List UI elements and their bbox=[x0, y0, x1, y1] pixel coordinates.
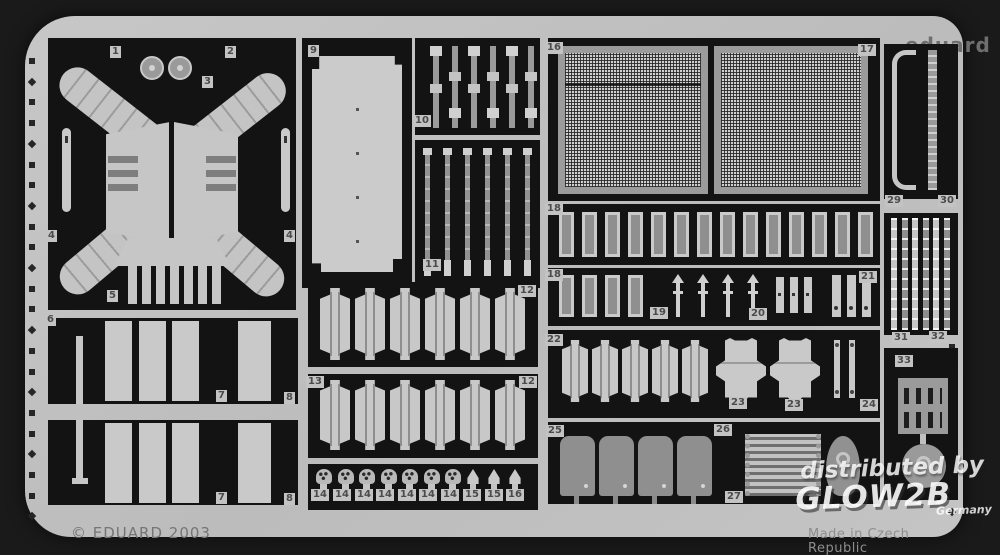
part-disc bbox=[140, 56, 164, 80]
rib-bar bbox=[206, 170, 236, 177]
pin-crossbar bbox=[723, 291, 733, 294]
part-plate bbox=[172, 321, 199, 401]
part-large-panel bbox=[312, 56, 402, 272]
strap-tail bbox=[484, 260, 491, 276]
part-strip bbox=[790, 277, 798, 313]
part-number-label: 1 bbox=[110, 46, 121, 58]
fan-strip bbox=[156, 264, 165, 304]
panel-clamps bbox=[548, 330, 880, 418]
cover-stem bbox=[652, 496, 657, 504]
latch-seam bbox=[690, 344, 700, 398]
strap-buckle bbox=[506, 84, 518, 93]
part-strap bbox=[445, 148, 450, 274]
part-number-label: 10 bbox=[413, 115, 431, 127]
part-rod bbox=[62, 128, 71, 212]
part-number-label: 5 bbox=[107, 290, 118, 302]
latch-seam bbox=[400, 384, 410, 446]
attach-dot bbox=[29, 244, 35, 250]
strap-buckle bbox=[449, 72, 461, 81]
pin-shaft bbox=[701, 283, 705, 317]
part-mesh-screen-16 bbox=[558, 46, 708, 194]
slot-row bbox=[904, 388, 942, 404]
strap-buckle bbox=[430, 84, 442, 93]
part-number-label: 16 bbox=[545, 42, 563, 54]
part-cover bbox=[677, 436, 712, 496]
attach-dot bbox=[29, 472, 35, 478]
part-frame bbox=[582, 212, 597, 257]
cover-dot bbox=[623, 484, 627, 488]
part-number-label: 18 bbox=[545, 269, 563, 281]
part-latch bbox=[320, 380, 350, 450]
part-strip bbox=[804, 277, 812, 313]
part-latch bbox=[355, 288, 385, 360]
part-number-label: 14 bbox=[311, 489, 329, 501]
part-dotted-strip bbox=[902, 218, 908, 330]
part-dotted-strip bbox=[944, 218, 950, 330]
pin-head bbox=[672, 274, 684, 283]
part-number-label: 21 bbox=[859, 271, 877, 283]
attach-dot bbox=[29, 348, 35, 354]
part-frame bbox=[674, 212, 689, 257]
attach-dot bbox=[948, 508, 956, 516]
panel-col-right-mid bbox=[884, 213, 958, 335]
part-number-label: 15 bbox=[485, 489, 503, 501]
photo-etch-sheet-photo: 35 560 BMP-2 part1 eduard © EDUARD 2003 … bbox=[0, 0, 1000, 555]
strip-dot bbox=[778, 293, 781, 296]
pin-crossbar bbox=[673, 291, 683, 294]
strap-buckle bbox=[449, 108, 461, 118]
part-number-label: 8 bbox=[284, 493, 295, 505]
part-plate bbox=[172, 423, 199, 503]
part-number-label: 13 bbox=[306, 376, 324, 388]
part-bracket-strip bbox=[76, 420, 83, 482]
part-number-label: 12 bbox=[519, 376, 537, 388]
part-strap bbox=[425, 148, 430, 274]
latch-seam bbox=[470, 292, 480, 356]
part-frame bbox=[582, 275, 597, 317]
part-latch bbox=[562, 340, 588, 402]
strap-tail bbox=[464, 260, 471, 276]
part-plate bbox=[105, 423, 132, 503]
part-winged-bracket bbox=[716, 338, 766, 400]
part-number-label: 7 bbox=[216, 492, 227, 504]
part-number-label: 22 bbox=[545, 334, 563, 346]
latch-seam bbox=[660, 344, 670, 398]
panel-latches-a bbox=[308, 282, 538, 367]
attach-dot bbox=[29, 182, 35, 188]
latch-seam bbox=[600, 344, 610, 398]
copyright-text: © EDUARD 2003 bbox=[71, 525, 211, 541]
pin-shaft bbox=[726, 283, 730, 317]
strip-hole bbox=[849, 306, 853, 310]
part-number-label: 6 bbox=[45, 314, 56, 326]
part-frame bbox=[835, 212, 850, 257]
part-dotted-strip bbox=[928, 50, 937, 190]
fan-strip bbox=[142, 264, 151, 304]
part-strip bbox=[832, 275, 841, 317]
part-cover bbox=[599, 436, 634, 496]
pin-head bbox=[722, 274, 734, 283]
part-number-label: 15 bbox=[463, 489, 481, 501]
part-latch bbox=[495, 380, 525, 450]
x-side-bars-right bbox=[48, 38, 49, 39]
part-number-label: 32 bbox=[929, 331, 947, 343]
part-latch bbox=[460, 288, 490, 360]
pin-crossbar bbox=[748, 291, 758, 294]
part-number-label: 2 bbox=[225, 46, 236, 58]
rib-bar bbox=[108, 156, 138, 163]
panel-col-right-top bbox=[884, 44, 958, 199]
part-number-label: 3 bbox=[202, 76, 213, 88]
cutout-x-frame bbox=[48, 38, 296, 310]
fan-strip bbox=[128, 264, 137, 304]
part-rod bbox=[281, 128, 290, 212]
part-cone bbox=[466, 469, 480, 484]
rib-bar bbox=[108, 170, 138, 177]
latch-seam bbox=[435, 384, 445, 446]
part-number-label: 12 bbox=[518, 285, 536, 297]
strap-buckle bbox=[468, 46, 480, 56]
part-frame bbox=[559, 212, 574, 257]
rib-bar bbox=[108, 184, 138, 191]
part-number-label: 14 bbox=[398, 489, 416, 501]
part-plate bbox=[105, 321, 132, 401]
part-knob bbox=[381, 469, 397, 484]
part-number-label: 8 bbox=[284, 392, 295, 404]
attach-dot bbox=[28, 388, 36, 396]
panel-lower-left-b bbox=[48, 420, 298, 505]
attach-dot bbox=[29, 369, 35, 375]
part-knob bbox=[338, 469, 354, 484]
part-number-label: 27 bbox=[725, 491, 743, 503]
rivet-dot bbox=[356, 240, 359, 243]
part-thin-strip bbox=[834, 340, 840, 398]
part-number-label: 9 bbox=[308, 45, 319, 57]
strap-tail bbox=[524, 260, 531, 276]
rivet-dot bbox=[356, 196, 359, 199]
rib-bar bbox=[206, 156, 236, 163]
part-frame bbox=[697, 212, 712, 257]
part-latch bbox=[320, 288, 350, 360]
pin-shaft bbox=[676, 283, 680, 317]
part-cover bbox=[638, 436, 673, 496]
strip-dot bbox=[792, 293, 795, 296]
mesh-fold-line bbox=[565, 83, 701, 86]
attach-dot bbox=[29, 162, 35, 168]
part-frame bbox=[651, 212, 666, 257]
part-bracket-strip bbox=[76, 336, 83, 404]
panel-straps-short bbox=[415, 38, 540, 135]
strap-tip bbox=[483, 148, 492, 155]
part-knob bbox=[359, 469, 375, 484]
part-number-label: 25 bbox=[546, 425, 564, 437]
strap-tip bbox=[443, 148, 452, 155]
part-frame bbox=[812, 212, 827, 257]
part-mesh-screen-17 bbox=[714, 46, 868, 194]
part-number-label: 14 bbox=[333, 489, 351, 501]
part-knob bbox=[402, 469, 418, 484]
part-number-label: 23 bbox=[729, 397, 747, 409]
part-frame bbox=[559, 275, 574, 317]
cover-stem bbox=[613, 496, 618, 504]
part-pin bbox=[722, 274, 734, 320]
part-cover bbox=[560, 436, 595, 496]
latch-seam bbox=[505, 384, 515, 446]
part-frame bbox=[628, 212, 643, 257]
attach-dot bbox=[29, 306, 35, 312]
strap-tip bbox=[503, 148, 512, 155]
strip-hole bbox=[835, 343, 839, 347]
attach-dot bbox=[29, 99, 35, 105]
made-in-text: Made in Czech Republic bbox=[808, 528, 963, 555]
disc-ring bbox=[916, 456, 931, 471]
part-plate bbox=[139, 321, 166, 401]
part-latch bbox=[682, 340, 708, 402]
attach-dot bbox=[28, 326, 36, 334]
part-strap bbox=[465, 148, 470, 274]
strap-buckle bbox=[487, 72, 499, 81]
part-latch bbox=[355, 380, 385, 450]
panel-mixed-row bbox=[548, 268, 880, 326]
strap-buckle bbox=[487, 108, 499, 118]
latch-seam bbox=[330, 384, 340, 446]
fan-strip bbox=[212, 264, 221, 304]
part-winged-bracket bbox=[770, 338, 820, 400]
part-frame bbox=[858, 212, 873, 257]
part-number-label: 11 bbox=[423, 259, 441, 271]
part-number-label: 7 bbox=[216, 390, 227, 402]
strip-dot bbox=[806, 293, 809, 296]
part-u-channel bbox=[892, 50, 916, 190]
attach-dot bbox=[28, 202, 36, 210]
strap-tip bbox=[523, 148, 532, 155]
x-fan-strips bbox=[48, 38, 296, 310]
slot-row bbox=[904, 412, 942, 428]
part-strap bbox=[485, 148, 490, 274]
part-cone bbox=[508, 469, 522, 484]
part-latch bbox=[652, 340, 678, 402]
panel-small-fittings bbox=[308, 464, 538, 510]
part-frame bbox=[766, 212, 781, 257]
pin-head bbox=[697, 274, 709, 283]
cutout-mesh-screens bbox=[548, 38, 880, 201]
part-plate bbox=[139, 423, 166, 503]
attach-dot bbox=[28, 450, 36, 458]
part-number-label: 18 bbox=[545, 203, 563, 215]
part-latch bbox=[592, 340, 618, 402]
strap-buckle bbox=[506, 46, 518, 56]
cover-dot bbox=[662, 484, 666, 488]
part-number-label: 14 bbox=[355, 489, 373, 501]
strap-buckle bbox=[468, 84, 480, 93]
pin-head bbox=[747, 274, 759, 283]
part-number-label: 26 bbox=[714, 424, 732, 436]
strap-buckle bbox=[430, 46, 442, 56]
part-number-label: 14 bbox=[419, 489, 437, 501]
rib-bar bbox=[206, 184, 236, 191]
part-frame bbox=[743, 212, 758, 257]
wing-seam bbox=[774, 362, 816, 364]
part-latch bbox=[390, 380, 420, 450]
part-number-label: 4 bbox=[46, 230, 57, 242]
part-cone bbox=[487, 469, 501, 484]
latch-seam bbox=[630, 344, 640, 398]
attach-dot bbox=[28, 264, 36, 272]
part-slotted-box bbox=[898, 378, 948, 434]
strip-hole bbox=[850, 343, 854, 347]
bracket-foot bbox=[72, 478, 88, 484]
latch-seam bbox=[365, 384, 375, 446]
part-plate bbox=[238, 423, 271, 503]
part-number-label: 31 bbox=[892, 332, 910, 344]
part-latch bbox=[425, 288, 455, 360]
part-latch bbox=[390, 288, 420, 360]
rod-pin bbox=[65, 136, 68, 143]
attach-dot bbox=[29, 224, 35, 230]
part-frame bbox=[628, 275, 643, 317]
part-number-label: 19 bbox=[650, 307, 668, 319]
cover-stem bbox=[691, 496, 696, 504]
part-dotted-strip bbox=[912, 218, 918, 330]
strip-hole bbox=[864, 306, 868, 310]
part-disc bbox=[168, 56, 192, 80]
part-number-label: 14 bbox=[441, 489, 459, 501]
latch-seam bbox=[470, 384, 480, 446]
part-number-label: 16 bbox=[506, 489, 524, 501]
part-latch bbox=[495, 288, 525, 360]
part-number-label: 20 bbox=[749, 308, 767, 320]
latch-seam bbox=[505, 292, 515, 356]
part-dotted-strip bbox=[923, 218, 929, 330]
strip-hole bbox=[835, 390, 839, 394]
cover-dot bbox=[701, 484, 705, 488]
part-number-label: 23 bbox=[785, 399, 803, 411]
part-number-label: 4 bbox=[284, 230, 295, 242]
strap-tip bbox=[423, 148, 432, 155]
rivet-dot bbox=[356, 152, 359, 155]
part-knob bbox=[445, 469, 461, 484]
part-rounded-cap bbox=[826, 436, 860, 496]
panel-latches-b bbox=[308, 374, 538, 458]
attach-dot bbox=[29, 493, 35, 499]
part-frame bbox=[605, 275, 620, 317]
latch-seam bbox=[330, 292, 340, 356]
part-number-label: 30 bbox=[938, 195, 956, 207]
box-stem bbox=[920, 434, 926, 444]
part-number-label: 29 bbox=[885, 195, 903, 207]
panel-col-right-bottom bbox=[884, 348, 958, 500]
wing-seam bbox=[720, 362, 762, 364]
part-number-label: 33 bbox=[895, 355, 913, 367]
disc-hole bbox=[177, 65, 183, 71]
left-attach-dots bbox=[29, 58, 35, 538]
attach-dot bbox=[28, 140, 36, 148]
fan-strip bbox=[184, 264, 193, 304]
disc-hole bbox=[149, 65, 155, 71]
strap-buckle bbox=[525, 108, 537, 118]
strap-tip bbox=[463, 148, 472, 155]
panel-lower-left-a bbox=[48, 318, 298, 404]
latch-seam bbox=[435, 292, 445, 356]
part-knob bbox=[424, 469, 440, 484]
latch-seam bbox=[400, 292, 410, 356]
part-strip bbox=[847, 275, 856, 317]
attach-dot bbox=[28, 512, 36, 520]
part-round-disc bbox=[902, 444, 946, 488]
part-pin bbox=[697, 274, 709, 320]
attach-dot bbox=[29, 58, 35, 64]
attach-dot bbox=[29, 410, 35, 416]
attach-dot bbox=[29, 120, 35, 126]
strip-hole bbox=[834, 306, 838, 310]
panel-buckles-row bbox=[548, 204, 880, 265]
cover-dot bbox=[584, 484, 588, 488]
part-thin-strip bbox=[849, 340, 855, 398]
part-strap bbox=[525, 148, 530, 274]
part-strap bbox=[505, 148, 510, 274]
attach-dot bbox=[28, 78, 36, 86]
part-dotted-strip bbox=[891, 218, 897, 330]
attach-dot bbox=[29, 286, 35, 292]
part-number-label: 24 bbox=[860, 399, 878, 411]
part-pin bbox=[672, 274, 684, 320]
fan-strip bbox=[198, 264, 207, 304]
strap-tail bbox=[444, 260, 451, 276]
cutout-large-plate bbox=[302, 38, 412, 288]
latch-seam bbox=[365, 292, 375, 356]
cover-stem bbox=[574, 496, 579, 504]
strap-buckle bbox=[525, 72, 537, 81]
strip-hole bbox=[850, 390, 854, 394]
part-strip bbox=[776, 277, 784, 313]
part-dotted-strip bbox=[933, 218, 939, 330]
part-latch bbox=[425, 380, 455, 450]
part-number-label: 14 bbox=[376, 489, 394, 501]
part-latch bbox=[460, 380, 490, 450]
part-ladder-grille bbox=[745, 434, 821, 496]
part-knob bbox=[316, 469, 332, 484]
rod-pin bbox=[284, 136, 287, 143]
attach-dot bbox=[29, 431, 35, 437]
fan-strip bbox=[170, 264, 179, 304]
rivet-dot bbox=[356, 108, 359, 111]
part-frame bbox=[605, 212, 620, 257]
latch-seam bbox=[570, 344, 580, 398]
part-latch bbox=[622, 340, 648, 402]
part-frame bbox=[720, 212, 735, 257]
cap-ring bbox=[836, 452, 850, 466]
pin-crossbar bbox=[698, 291, 708, 294]
part-frame bbox=[789, 212, 804, 257]
strap-tail bbox=[504, 260, 511, 276]
part-number-label: 17 bbox=[858, 44, 876, 56]
part-plate bbox=[238, 321, 271, 401]
